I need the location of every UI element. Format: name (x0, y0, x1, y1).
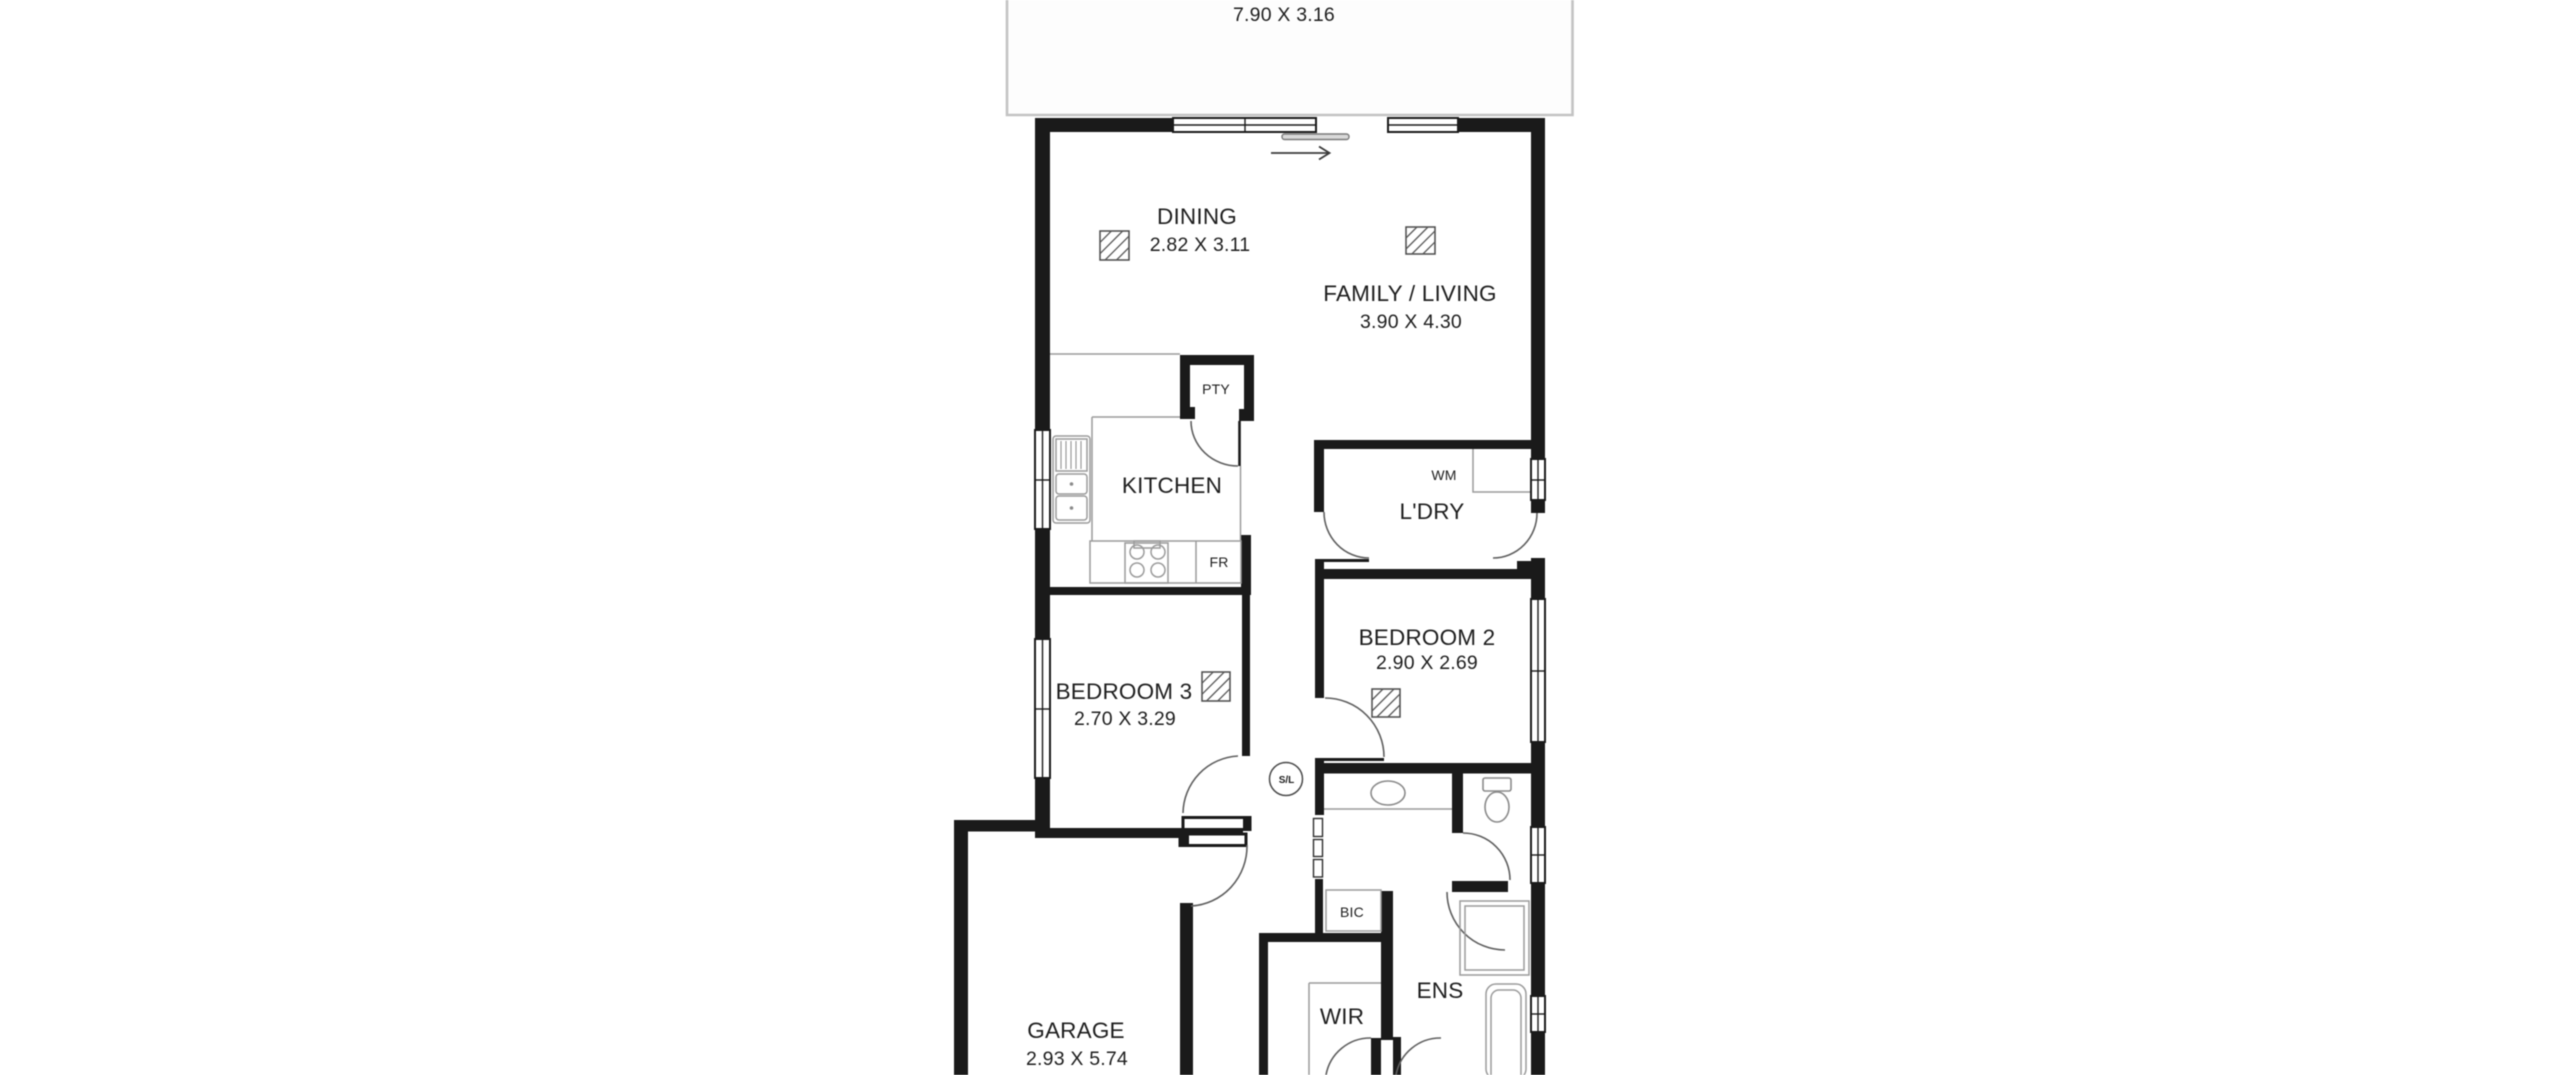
svg-text:KITCHEN: KITCHEN (1122, 473, 1222, 498)
svg-text:2.90 X 2.69: 2.90 X 2.69 (1376, 652, 1478, 674)
svg-text:DINING: DINING (1157, 204, 1237, 229)
svg-text:3.90 X 4.30: 3.90 X 4.30 (1360, 311, 1462, 333)
svg-text:ENS: ENS (1417, 978, 1464, 1003)
svg-text:L'DRY: L'DRY (1400, 499, 1465, 524)
svg-text:PTY: PTY (1202, 381, 1230, 397)
svg-text:2.70 X 3.29: 2.70 X 3.29 (1074, 708, 1176, 730)
svg-text:GARAGE: GARAGE (1027, 1018, 1124, 1043)
svg-text:FR: FR (1209, 554, 1228, 570)
svg-text:2.82 X 3.11: 2.82 X 3.11 (1150, 234, 1251, 256)
svg-text:FAMILY / LIVING: FAMILY / LIVING (1323, 281, 1496, 306)
svg-text:WM: WM (1431, 467, 1456, 483)
svg-text:7.90 X 3.16: 7.90 X 3.16 (1233, 4, 1335, 26)
svg-text:S/L: S/L (1279, 775, 1295, 786)
svg-text:BEDROOM 2: BEDROOM 2 (1359, 625, 1496, 650)
svg-text:2.93 X 5.74: 2.93 X 5.74 (1026, 1048, 1128, 1070)
svg-text:BEDROOM 3: BEDROOM 3 (1056, 679, 1193, 704)
svg-text:BIC: BIC (1340, 904, 1364, 920)
svg-text:WIR: WIR (1320, 1004, 1364, 1029)
